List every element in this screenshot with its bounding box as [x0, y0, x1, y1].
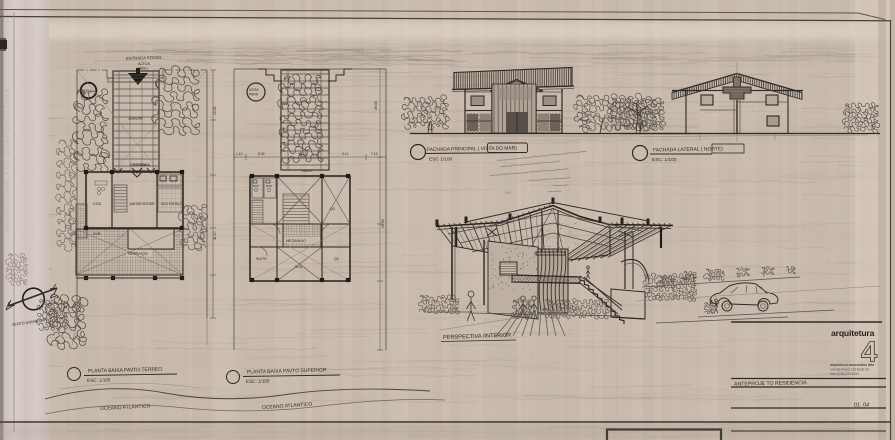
svg-text:149: 149 [505, 191, 511, 195]
svg-text:arquitetura associados ltda: arquitetura associados ltda [830, 363, 874, 367]
svg-text:rua dos ilheus 118 fpolis SC: rua dos ilheus 118 fpolis SC [830, 368, 870, 372]
svg-text:Q1: Q1 [334, 257, 339, 261]
svg-text:BHO: BHO [266, 184, 273, 188]
svg-text:19.35: 19.35 [213, 106, 217, 115]
svg-text:FACHADA LATERAL ( NORTE): FACHADA LATERAL ( NORTE) [653, 146, 723, 153]
svg-text:SUITE: SUITE [256, 257, 267, 261]
svg-text:ESC 1/100: ESC 1/100 [429, 157, 453, 163]
svg-text:ESC: 1/100: ESC: 1/100 [652, 157, 677, 163]
svg-text:ENTRADA: ENTRADA [133, 163, 151, 167]
svg-text:VAZIO: VAZIO [302, 169, 312, 173]
svg-text:8.33: 8.33 [258, 152, 265, 156]
svg-text:COZ.: COZ. [93, 202, 102, 206]
svg-text:41.10: 41.10 [213, 231, 217, 240]
svg-text:01. 04: 01. 04 [854, 403, 869, 409]
svg-text:6.10: 6.10 [300, 152, 307, 156]
svg-text:ALTOS: ALTOS [138, 62, 151, 66]
svg-text:JANTAR /ESTAR: JANTAR /ESTAR [129, 202, 155, 206]
svg-text:PARA: PARA [249, 93, 259, 97]
svg-text:49.50: 49.50 [381, 219, 385, 228]
svg-text:MEZANINO: MEZANINO [286, 239, 306, 243]
svg-text:VISTA: VISTA [249, 88, 259, 92]
svg-text:ESC: 1/100: ESC: 1/100 [246, 378, 270, 384]
svg-text:ANTEPROJE TO RESIDENCIA: ANTEPROJE TO RESIDENCIA [734, 380, 807, 387]
svg-text:1.10: 1.10 [236, 152, 243, 156]
svg-text:5.10: 5.10 [342, 152, 349, 156]
svg-text:UNIVERSIDADE FED DE ARQUITETUR: UNIVERSIDADE FED DE ARQUITETURA [4, 88, 11, 235]
svg-text:ESC: 1/100: ESC: 1/100 [87, 377, 111, 383]
svg-text:7.16: 7.16 [371, 152, 378, 156]
svg-text:JARDIM: JARDIM [128, 115, 143, 121]
svg-text:BHO: BHO [253, 184, 260, 188]
svg-text:39.60: 39.60 [374, 101, 378, 110]
svg-text:fone (048) 222 4004: fone (048) 222 4004 [830, 372, 859, 376]
